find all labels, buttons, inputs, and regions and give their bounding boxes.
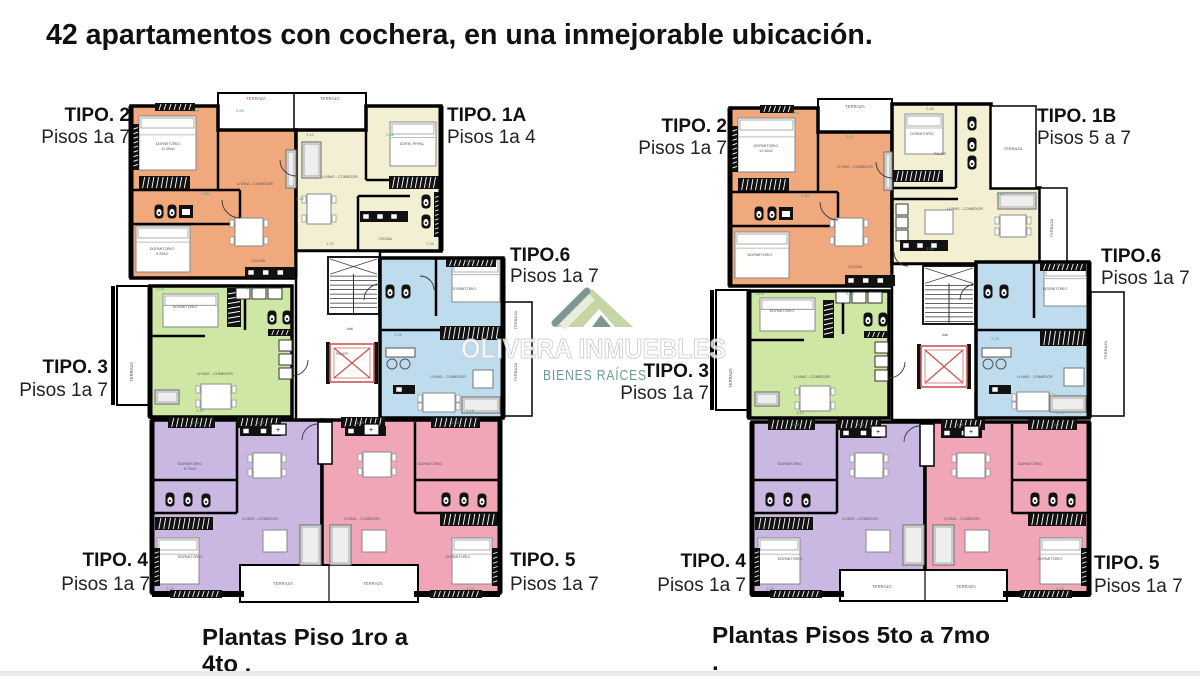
- svg-text:Pisos 1a 7: Pisos 1a 7: [19, 380, 108, 401]
- svg-text:TIPO. 2: TIPO. 2: [65, 105, 130, 126]
- svg-text:3.00: 3.00: [356, 420, 365, 425]
- svg-text:2.60: 2.60: [1051, 422, 1060, 427]
- svg-text:2.40: 2.40: [246, 286, 255, 291]
- svg-text:DORMITORIO: DORMITORIO: [770, 309, 795, 313]
- svg-text:2.80: 2.80: [791, 110, 800, 115]
- svg-text:BIENES RAÍCES: BIENES RAÍCES: [543, 367, 647, 384]
- svg-text:LIVING - COMEDOR: LIVING - COMEDOR: [837, 165, 873, 169]
- svg-text:2.80: 2.80: [191, 108, 200, 113]
- svg-text:12.45m2: 12.45m2: [759, 149, 773, 153]
- svg-text:2.88: 2.88: [386, 132, 395, 137]
- svg-text:DORMITORIO: DORMITORIO: [446, 555, 471, 559]
- svg-text:3.10: 3.10: [196, 408, 205, 413]
- svg-text:+: +: [276, 427, 280, 434]
- svg-text:DORM. PRPAL: DORM. PRPAL: [400, 142, 425, 146]
- svg-text:4.30: 4.30: [296, 196, 305, 201]
- svg-text:Pisos 5 a 7: Pisos 5 a 7: [1037, 128, 1131, 149]
- svg-text:Plantas Piso 1ro a: Plantas Piso 1ro a: [202, 624, 408, 650]
- svg-text:TERRAZA: TERRAZA: [363, 581, 383, 586]
- svg-text:hall: hall: [347, 326, 353, 331]
- svg-text:Pisos 1a 4: Pisos 1a 4: [447, 127, 536, 148]
- svg-text:DORMITORIO: DORMITORIO: [748, 253, 773, 257]
- svg-text:TERRAZA: TERRAZA: [845, 104, 865, 109]
- svg-text:PALIER: PALIER: [336, 352, 349, 356]
- svg-text:Pisos 1a 7: Pisos 1a 7: [41, 127, 130, 148]
- svg-text:3.05: 3.05: [1056, 410, 1065, 415]
- svg-text:3.42: 3.42: [846, 134, 855, 139]
- svg-text:3.00: 3.00: [466, 586, 475, 591]
- svg-text:TIPO. 4: TIPO. 4: [681, 551, 747, 572]
- svg-text:OLIVERA INMUEBLES: OLIVERA INMUEBLES: [461, 333, 726, 364]
- svg-text:2.90: 2.90: [1056, 262, 1065, 267]
- svg-text:TERRAZA: TERRAZA: [1103, 340, 1108, 359]
- svg-text:Pisos 1a 7: Pisos 1a 7: [638, 138, 727, 159]
- svg-text:2.35: 2.35: [394, 332, 403, 337]
- svg-text:TERRAZA: TERRAZA: [728, 368, 733, 388]
- svg-text:LIVING - COMEDOR: LIVING - COMEDOR: [344, 517, 380, 521]
- svg-text:hall: hall: [942, 332, 948, 337]
- svg-text:3.00: 3.00: [756, 291, 765, 296]
- svg-text:3.00: 3.00: [156, 286, 165, 291]
- svg-text:PALIER: PALIER: [934, 152, 947, 156]
- svg-text:2.80: 2.80: [236, 108, 245, 113]
- svg-text:DORMITORIO: DORMITORIO: [910, 132, 933, 136]
- svg-text:DORMITORIO: DORMITORIO: [178, 462, 203, 466]
- svg-text:COCINA: COCINA: [848, 265, 863, 269]
- svg-text:TIPO.6: TIPO.6: [510, 245, 570, 266]
- svg-text:Pisos 1a 7: Pisos 1a 7: [61, 574, 150, 595]
- svg-text:DORMITORIO: DORMITORIO: [156, 142, 181, 146]
- svg-text:2.98: 2.98: [801, 193, 810, 198]
- svg-text:TIPO. 4: TIPO. 4: [83, 550, 149, 571]
- svg-text:LIVING - COMEDOR: LIVING - COMEDOR: [237, 182, 273, 186]
- svg-text:TERRAZA: TERRAZA: [1049, 218, 1054, 237]
- svg-text:LIVING - COMEDOR: LIVING - COMEDOR: [794, 375, 830, 379]
- svg-text:3.00: 3.00: [1056, 586, 1065, 591]
- svg-text:Pisos 1a 7: Pisos 1a 7: [657, 575, 746, 596]
- svg-text:TIPO.6: TIPO.6: [1101, 246, 1161, 267]
- svg-text:+: +: [969, 429, 973, 436]
- svg-text:LIVING - COMEDOR: LIVING - COMEDOR: [842, 517, 878, 521]
- svg-text:3.00: 3.00: [956, 422, 965, 427]
- svg-text:DORMITORIO: DORMITORIO: [452, 287, 477, 291]
- svg-text:DORMITORIO: DORMITORIO: [178, 555, 203, 559]
- svg-text:1.35: 1.35: [426, 241, 435, 246]
- svg-text:2.88: 2.88: [926, 106, 935, 111]
- svg-text:2.35: 2.35: [991, 336, 1000, 341]
- svg-text:Plantas Pisos 5to a 7mo: Plantas Pisos 5to a 7mo: [712, 622, 990, 648]
- svg-text:Pisos 1a 7: Pisos 1a 7: [1101, 268, 1190, 289]
- svg-text:Pisos 1a 7: Pisos 1a 7: [510, 574, 599, 595]
- svg-text:2.08: 2.08: [791, 422, 800, 427]
- svg-text:LIVING - COMEDOR: LIVING - COMEDOR: [430, 375, 466, 379]
- svg-text:9.29m2: 9.29m2: [156, 252, 168, 256]
- svg-text:DORMITORIO: DORMITORIO: [418, 462, 443, 466]
- svg-text:2.90: 2.90: [466, 258, 475, 263]
- svg-text:DORMITORIO: DORMITORIO: [1043, 287, 1068, 291]
- svg-text:LIVING - COMEDOR: LIVING - COMEDOR: [322, 175, 358, 179]
- svg-text:+: +: [876, 429, 880, 436]
- svg-text:DORMITORIO: DORMITORIO: [150, 247, 175, 251]
- svg-text:TERRAZA: TERRAZA: [320, 96, 340, 101]
- svg-text:TERRAZA: TERRAZA: [273, 581, 293, 586]
- svg-text:8.73m2: 8.73m2: [184, 467, 196, 471]
- svg-text:4.30: 4.30: [996, 191, 1005, 196]
- svg-text:LIVING - COMEDOR: LIVING - COMEDOR: [944, 517, 980, 521]
- svg-text:+: +: [369, 427, 373, 434]
- svg-text:TERRAZA: TERRAZA: [246, 96, 266, 101]
- svg-text:TERRAZA: TERRAZA: [513, 310, 518, 329]
- svg-text:TIPO. 5: TIPO. 5: [1094, 553, 1160, 574]
- svg-text:LIVING - COMEDOR: LIVING - COMEDOR: [242, 517, 278, 521]
- svg-text:3.00: 3.00: [256, 420, 265, 425]
- svg-text:DORMITORIO: DORMITORIO: [1038, 557, 1063, 561]
- svg-text:LIVING - COMEDOR: LIVING - COMEDOR: [197, 372, 233, 376]
- svg-text:3.10: 3.10: [796, 410, 805, 415]
- svg-text:Pisos 1a 7: Pisos 1a 7: [510, 266, 599, 287]
- svg-text:DORMITORIO: DORMITORIO: [1018, 462, 1043, 466]
- svg-text:DORMITORIO: DORMITORIO: [173, 305, 198, 309]
- svg-text:42 apartamentos con cochera, e: 42 apartamentos con cochera, en una inme…: [46, 19, 873, 51]
- svg-text:2.98: 2.98: [201, 191, 210, 196]
- svg-text:2.60: 2.60: [451, 420, 460, 425]
- svg-text:LIVING - COMEDOR: LIVING - COMEDOR: [1017, 375, 1053, 379]
- svg-text:12.45m2: 12.45m2: [161, 147, 175, 151]
- svg-text:DORMITORIO: DORMITORIO: [778, 462, 803, 466]
- svg-text:TERRAZA: TERRAZA: [513, 362, 518, 381]
- svg-text:TIPO. 1A: TIPO. 1A: [447, 105, 526, 126]
- svg-text:DORMITORIO: DORMITORIO: [778, 557, 803, 561]
- svg-text:2.40: 2.40: [846, 291, 855, 296]
- svg-text:TIPO. 5: TIPO. 5: [510, 550, 576, 571]
- svg-text:3.00: 3.00: [166, 586, 175, 591]
- svg-text:3.42: 3.42: [306, 132, 315, 137]
- svg-text:TIPO. 3: TIPO. 3: [43, 357, 108, 378]
- svg-text:TERRAZA: TERRAZA: [129, 362, 134, 382]
- svg-text:TIPO. 3: TIPO. 3: [644, 361, 709, 382]
- svg-text:3.00: 3.00: [766, 586, 775, 591]
- svg-text:1.20: 1.20: [926, 246, 935, 251]
- svg-text:DORMITORIO: DORMITORIO: [754, 144, 779, 148]
- svg-text:3.05: 3.05: [466, 408, 475, 413]
- svg-text:TERRAZA: TERRAZA: [956, 584, 976, 589]
- svg-text:TIPO. 1B: TIPO. 1B: [1037, 106, 1116, 127]
- svg-text:TERRAZA: TERRAZA: [1004, 146, 1023, 151]
- svg-text:Pisos 1a 7: Pisos 1a 7: [620, 383, 709, 404]
- svg-text:3.00: 3.00: [856, 422, 865, 427]
- svg-text:COCINA: COCINA: [378, 237, 392, 241]
- svg-text:LIVING - COMEDOR: LIVING - COMEDOR: [947, 207, 983, 211]
- svg-text:TERRAZA: TERRAZA: [872, 584, 892, 589]
- svg-text:COCINA: COCINA: [251, 259, 266, 263]
- svg-text:TIPO. 2: TIPO. 2: [662, 116, 727, 137]
- svg-text:2.08: 2.08: [191, 420, 200, 425]
- svg-text:1.20: 1.20: [326, 241, 335, 246]
- svg-text:Pisos 1a 7: Pisos 1a 7: [1094, 576, 1183, 597]
